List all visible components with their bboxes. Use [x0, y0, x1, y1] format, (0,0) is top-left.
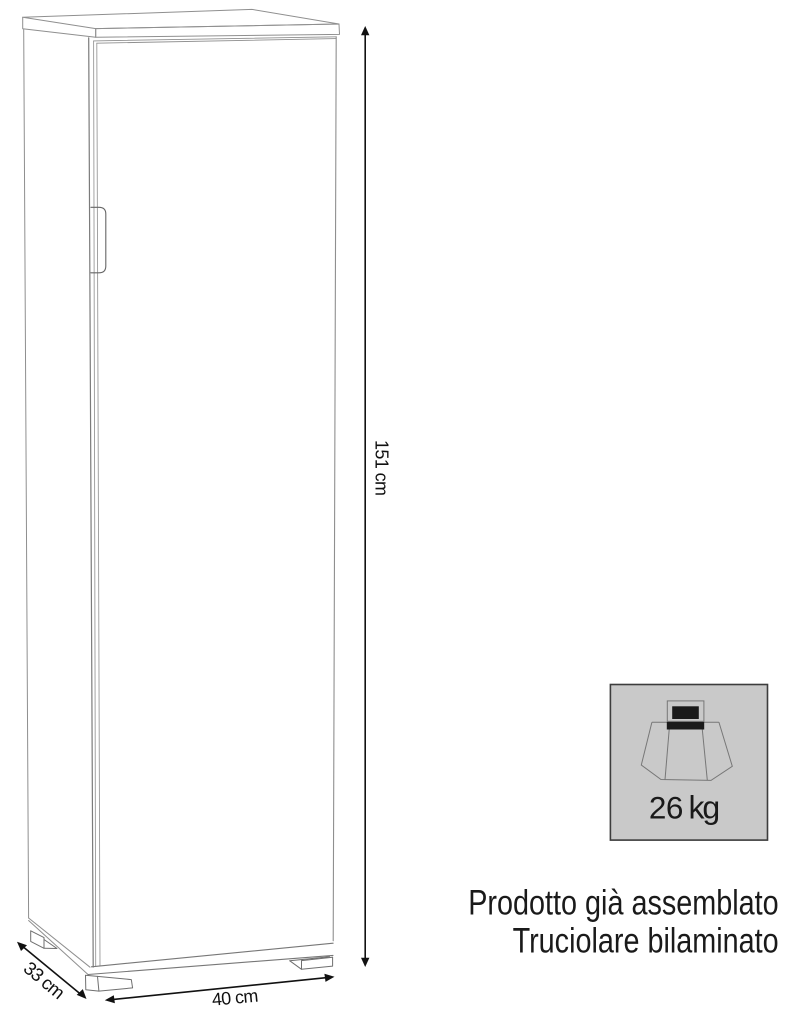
svg-text:151 cm: 151 cm: [372, 440, 392, 496]
svg-text:Prodotto già assemblato: Prodotto già assemblato: [468, 884, 779, 923]
svg-text:26: 26: [649, 789, 684, 825]
svg-text:Truciolare bilaminato: Truciolare bilaminato: [513, 921, 779, 960]
svg-text:kg: kg: [689, 789, 721, 825]
